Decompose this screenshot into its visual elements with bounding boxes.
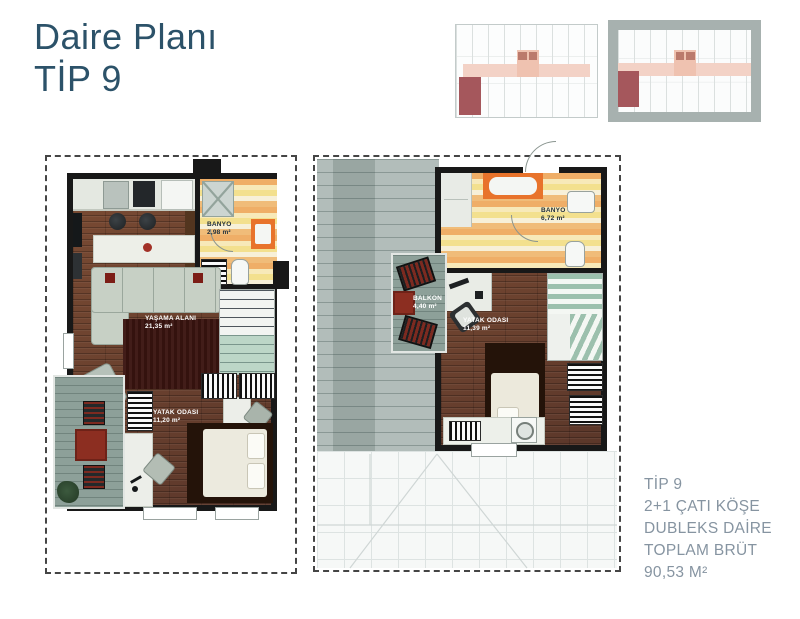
bathtub bbox=[489, 177, 537, 195]
radiator bbox=[239, 373, 275, 399]
room-label-yasama-alani: YAŞAMA ALANI 21,35 m² bbox=[145, 315, 196, 332]
summary-line: TİP 9 bbox=[644, 474, 772, 496]
desk-item bbox=[132, 486, 138, 492]
key-plan-elevator-core bbox=[674, 50, 697, 76]
chimney-block bbox=[193, 159, 221, 175]
room-name: YAŞAMA ALANI bbox=[145, 315, 196, 323]
bar-stool bbox=[109, 213, 126, 230]
bed-pillow bbox=[247, 433, 265, 459]
desk-item bbox=[475, 291, 483, 299]
key-plan-roof-floor bbox=[608, 20, 761, 122]
terrace-chair bbox=[83, 401, 105, 425]
room-name: BANYO bbox=[207, 221, 231, 229]
floor-plan-upper: BANYO 6,72 m² YATAK ODASI 11,39 m² bbox=[313, 155, 621, 572]
bathroom-sink-upper bbox=[567, 191, 595, 213]
window bbox=[63, 333, 74, 369]
window bbox=[143, 507, 197, 520]
bar-stool bbox=[139, 213, 156, 230]
bed bbox=[187, 423, 273, 503]
room-area: 11,39 m² bbox=[463, 325, 508, 333]
key-plan-highlighted-unit bbox=[459, 77, 482, 116]
room-area: 21,35 m² bbox=[145, 323, 196, 331]
toilet bbox=[231, 259, 249, 285]
sofa-pillow bbox=[105, 273, 115, 283]
wardrobe-louvered bbox=[127, 391, 153, 431]
key-plan-standard-floor bbox=[455, 24, 598, 118]
page-title: Daire Planı TİP 9 bbox=[34, 16, 218, 101]
room-area: 2,98 m² bbox=[207, 229, 231, 237]
stair-treads-green bbox=[548, 274, 602, 314]
room-name: YATAK ODASI bbox=[153, 409, 198, 417]
page-title-line2: TİP 9 bbox=[34, 58, 218, 100]
cooktop bbox=[133, 181, 155, 207]
window bbox=[471, 443, 517, 457]
room-name: BALKON bbox=[413, 295, 442, 303]
fridge bbox=[161, 180, 193, 210]
terrace-chair bbox=[83, 465, 105, 489]
sofa-pillow bbox=[193, 273, 203, 283]
summary-line: DUBLEKS DAİRE bbox=[644, 518, 772, 540]
stair-fan bbox=[570, 314, 602, 360]
radiator bbox=[569, 395, 603, 425]
key-plan-elevator-core bbox=[517, 50, 540, 77]
window bbox=[215, 507, 259, 520]
staircase-upper bbox=[547, 273, 603, 361]
desk-lamp bbox=[449, 278, 470, 290]
key-plan-highlighted-unit bbox=[618, 71, 639, 107]
kitchen-sink bbox=[103, 181, 129, 209]
staircase-green-steps bbox=[220, 335, 274, 374]
summary-line: 90,53 M² bbox=[644, 562, 772, 584]
brochure-page: Daire Planı TİP 9 BANYO 2,98 m² bbox=[0, 0, 800, 619]
room-label-balkon: BALKON 4,40 m² bbox=[413, 295, 442, 312]
entry-door-arc bbox=[525, 141, 556, 172]
radiator bbox=[567, 363, 603, 391]
tv-unit bbox=[73, 213, 82, 247]
room-label-yatak-odasi-upper: YATAK ODASI 11,39 m² bbox=[463, 317, 508, 334]
desk-lamp bbox=[130, 475, 142, 484]
room-area: 11,20 m² bbox=[153, 417, 198, 425]
room-area: 4,40 m² bbox=[413, 303, 442, 311]
room-label-banyo-lower: BANYO 2,98 m² bbox=[207, 221, 231, 238]
staircase-lower bbox=[219, 289, 275, 375]
plant bbox=[57, 481, 79, 503]
room-label-yatak-odasi-lower: YATAK ODASI 11,20 m² bbox=[153, 409, 198, 426]
room-name: YATAK ODASI bbox=[463, 317, 508, 325]
washer-drum-icon bbox=[516, 422, 534, 440]
balcony-table bbox=[393, 291, 415, 315]
entry-wall-notch bbox=[273, 261, 289, 289]
bathtub-surround bbox=[483, 173, 543, 199]
toilet-upper bbox=[565, 241, 585, 267]
summary-line: 2+1 ÇATI KÖŞE bbox=[644, 496, 772, 518]
shower-tray bbox=[202, 181, 234, 217]
summary-line: TOPLAM BRÜT bbox=[644, 540, 772, 562]
shower-x-icon bbox=[203, 182, 233, 216]
media-cabinet bbox=[73, 253, 82, 279]
flower-vase bbox=[143, 243, 152, 252]
washing-machine bbox=[511, 417, 537, 443]
room-name: BANYO bbox=[541, 207, 565, 215]
floor-plan-lower: BANYO 2,98 m² YAŞAMA ALANI 21,35 m² bbox=[45, 155, 297, 574]
radiator bbox=[201, 373, 237, 399]
page-title-line1: Daire Planı bbox=[34, 16, 218, 58]
room-label-banyo-upper: BANYO 6,72 m² bbox=[541, 207, 565, 224]
radiator bbox=[449, 421, 481, 441]
bed-pillow bbox=[247, 463, 265, 489]
room-area: 6,72 m² bbox=[541, 215, 565, 223]
bathroom-sink-cabinet bbox=[251, 219, 275, 249]
closet-shelf-line bbox=[444, 199, 468, 200]
terrace-table bbox=[75, 429, 107, 461]
bathroom-closet bbox=[441, 173, 472, 227]
sink-basin bbox=[255, 224, 271, 244]
unit-summary: TİP 9 2+1 ÇATI KÖŞE DUBLEKS DAİRE TOPLAM… bbox=[644, 474, 772, 584]
